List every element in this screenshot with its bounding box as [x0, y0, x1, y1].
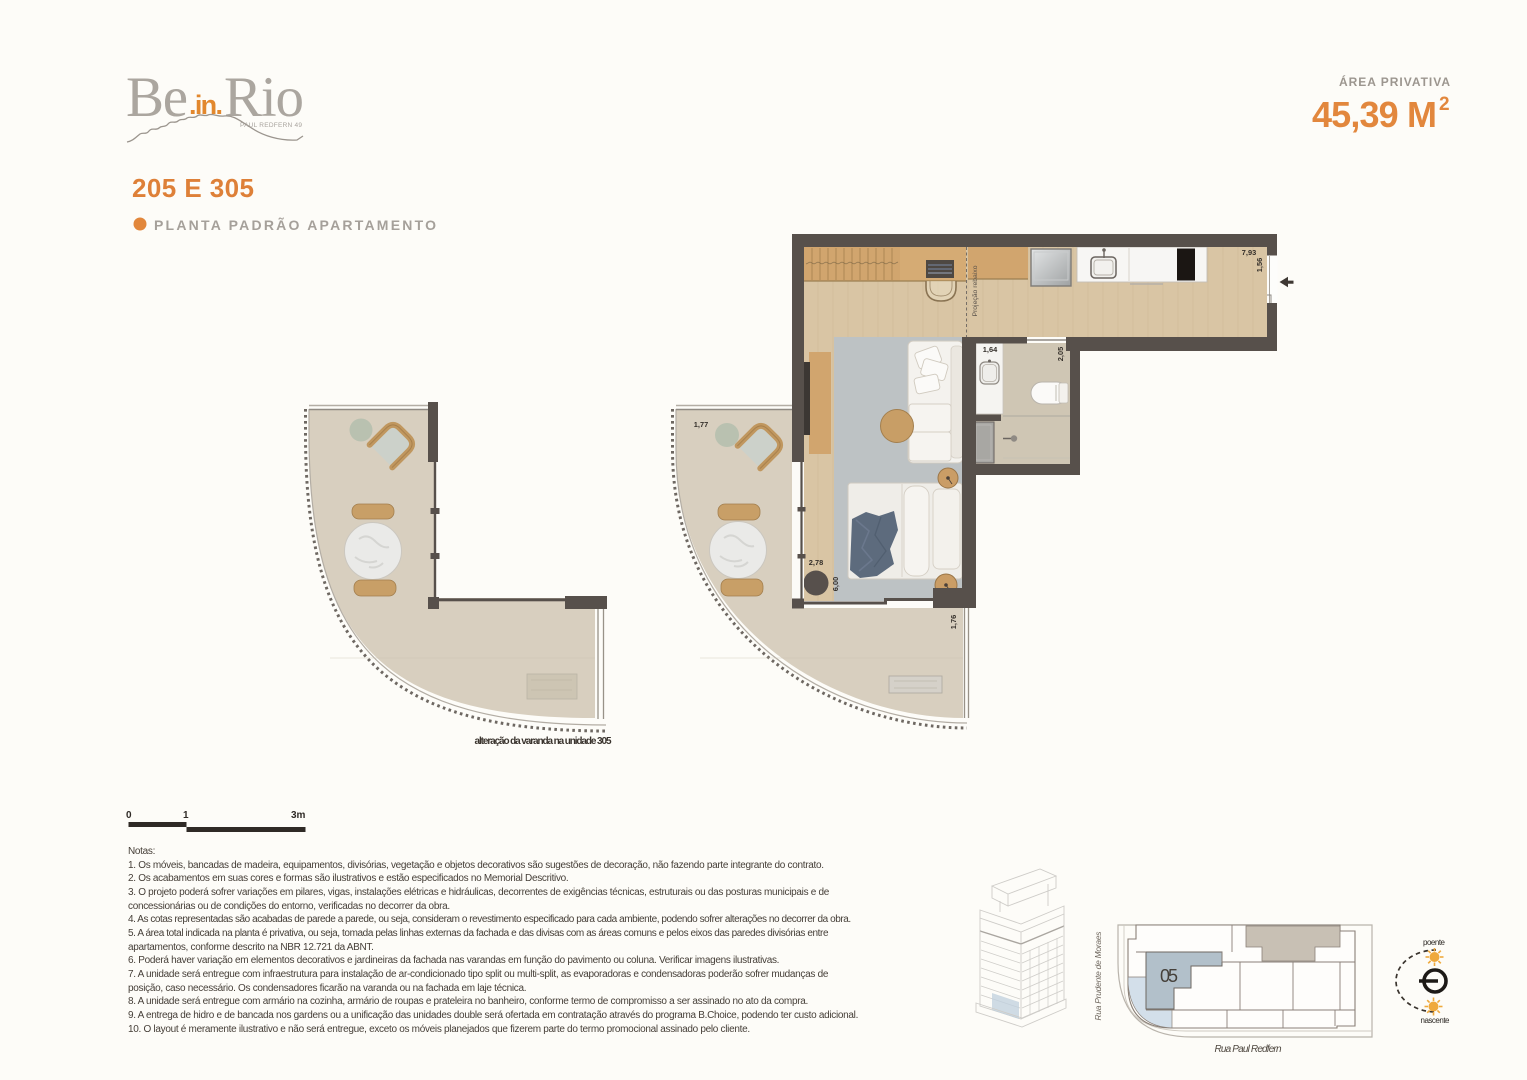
svg-text:0: 0 — [126, 810, 132, 821]
svg-text:205 E 305: 205 E 305 — [132, 173, 254, 203]
svg-text:1: 1 — [183, 810, 189, 821]
svg-text:1,77: 1,77 — [694, 420, 708, 429]
svg-text:3m: 3m — [291, 810, 306, 821]
svg-text:1,76: 1,76 — [949, 615, 958, 629]
svg-text:45,39 M: 45,39 M — [1312, 94, 1437, 135]
svg-text:1,64: 1,64 — [983, 345, 998, 354]
svg-text:ÁREA PRIVATIVA: ÁREA PRIVATIVA — [1339, 74, 1450, 89]
svg-text:PLANTA PADRÃO APARTAMENTO: PLANTA PADRÃO APARTAMENTO — [154, 216, 438, 233]
svg-text:2: 2 — [1439, 94, 1450, 115]
svg-text:1,56: 1,56 — [1255, 258, 1264, 272]
svg-text:nascente: nascente — [1421, 1016, 1451, 1025]
svg-text:Projeção rebaixo: Projeção rebaixo — [972, 265, 979, 316]
svg-text:Be: Be — [126, 66, 188, 129]
svg-text:poente: poente — [1423, 938, 1446, 947]
svg-text:alteração da varanda na unidad: alteração da varanda na unidade 305 — [475, 736, 612, 747]
svg-text:Rua Paul Redfern: Rua Paul Redfern — [1215, 1044, 1282, 1055]
svg-text:2,78: 2,78 — [809, 558, 823, 567]
svg-text:Rio: Rio — [224, 66, 304, 129]
svg-text:2,05: 2,05 — [1056, 347, 1065, 361]
svg-text:6,00: 6,00 — [831, 577, 840, 591]
svg-text:7,93: 7,93 — [1242, 248, 1256, 257]
svg-text:PAUL REDFERN 49: PAUL REDFERN 49 — [240, 122, 302, 129]
